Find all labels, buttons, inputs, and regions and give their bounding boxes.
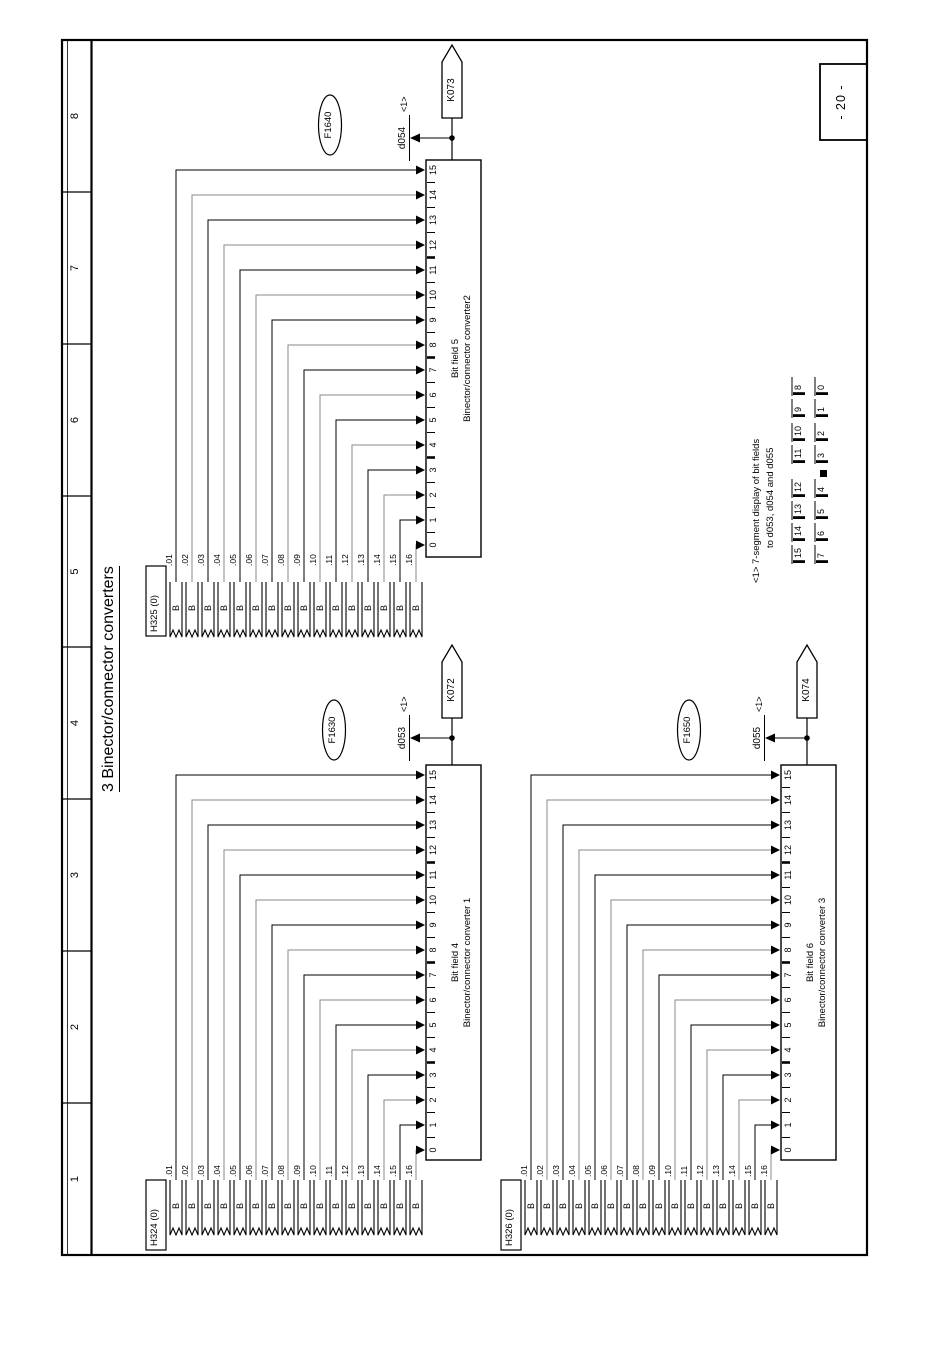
binector-type-label: B xyxy=(266,1203,278,1209)
bit-wire xyxy=(272,320,417,582)
binector-type-label: B xyxy=(637,1203,649,1209)
source-param-label: H324 (0) xyxy=(150,1209,161,1246)
pin-number: 8 xyxy=(428,334,438,356)
binector-type-label: B xyxy=(234,605,246,611)
pin-number: 10 xyxy=(428,889,438,911)
bit-wire xyxy=(208,220,417,582)
binector-type-label: B xyxy=(394,605,406,611)
pin-number: 4 xyxy=(428,434,438,456)
bit-number-label: .08 xyxy=(277,554,287,566)
segment-bar xyxy=(816,460,828,463)
block-subtitle: Binector/connector converter 3 xyxy=(818,765,829,1160)
footnote-line2: to d053, d054 and d055 xyxy=(766,448,777,548)
input-arrow-icon xyxy=(416,191,425,200)
input-arrow-icon xyxy=(771,846,780,855)
binector-type-label: B xyxy=(573,1203,585,1209)
pin-number: 11 xyxy=(428,259,438,281)
bit-number-label: .10 xyxy=(309,554,319,566)
connector-name: K074 xyxy=(800,664,813,716)
input-arrow-icon xyxy=(771,1146,780,1155)
binector-type-label: B xyxy=(378,1203,390,1209)
binector-type-label: B xyxy=(378,605,390,611)
pin-number: 9 xyxy=(428,309,438,331)
bit-number-label: .12 xyxy=(341,554,351,566)
seg-bit-number: 1 xyxy=(816,407,826,412)
seg-bit-number: 14 xyxy=(793,526,803,536)
pin-number: 1 xyxy=(428,509,438,531)
bit-number-label: .13 xyxy=(357,554,367,566)
bit-number-label: .03 xyxy=(197,1165,207,1177)
column-number: 2 xyxy=(69,1007,82,1047)
bit-wire xyxy=(272,925,417,1180)
input-arrow-icon xyxy=(416,1046,425,1055)
bit-number-label: .15 xyxy=(744,1165,754,1177)
display-arrow-icon xyxy=(765,734,775,743)
binector-type-label: B xyxy=(170,605,182,611)
pin-number: 4 xyxy=(428,1039,438,1061)
seg-bit-number: 13 xyxy=(793,504,803,514)
pin-number: 7 xyxy=(428,964,438,986)
input-arrow-icon xyxy=(416,871,425,880)
bit-number-label: .14 xyxy=(373,1165,383,1177)
pin-number: 5 xyxy=(428,1014,438,1036)
bit-number-label: .12 xyxy=(341,1165,351,1177)
pin-number: 9 xyxy=(783,914,793,936)
bit-wire xyxy=(771,1150,772,1180)
pin-number: 3 xyxy=(783,1064,793,1086)
bit-wire xyxy=(563,825,772,1180)
bit-number-label: .14 xyxy=(728,1165,738,1177)
block-title: Bit field 6 xyxy=(806,765,817,1160)
binector-type-label: B xyxy=(282,605,294,611)
binector-type-label: B xyxy=(685,1203,697,1209)
bit-number-label: .16 xyxy=(760,1165,770,1177)
footnote-ref: <1> xyxy=(399,96,409,112)
pin-number: 12 xyxy=(428,839,438,861)
input-arrow-icon xyxy=(771,996,780,1005)
display-param-label: d055 xyxy=(752,715,765,761)
bit-number-label: .08 xyxy=(632,1165,642,1177)
pin-number: 6 xyxy=(783,989,793,1011)
binector-type-label: B xyxy=(621,1203,633,1209)
input-arrow-icon xyxy=(416,996,425,1005)
footnote-ref: <1> xyxy=(399,696,409,712)
pin-number: 4 xyxy=(783,1039,793,1061)
pin-number: 7 xyxy=(783,964,793,986)
binector-type-label: B xyxy=(653,1203,665,1209)
column-number: 7 xyxy=(69,248,82,288)
pin-number: 1 xyxy=(428,1114,438,1136)
bit-wire xyxy=(416,1150,417,1180)
bit-wire xyxy=(240,875,417,1180)
bit-wire xyxy=(176,775,417,1180)
pin-number: 3 xyxy=(428,1064,438,1086)
bit-number-label: .01 xyxy=(520,1165,530,1177)
seg-bit-number: 10 xyxy=(793,426,803,436)
column-number: 5 xyxy=(69,552,82,592)
input-arrow-icon xyxy=(771,821,780,830)
binector-type-label: B xyxy=(202,1203,214,1209)
bit-number-label: .02 xyxy=(181,1165,191,1177)
bit-wire xyxy=(336,1025,417,1180)
binector-type-label: B xyxy=(218,605,230,611)
bit-number-label: .16 xyxy=(405,554,415,566)
input-arrow-icon xyxy=(416,216,425,225)
bit-number-label: .05 xyxy=(229,1165,239,1177)
bit-wire xyxy=(531,775,772,1180)
bit-number-label: .13 xyxy=(712,1165,722,1177)
bit-number-label: .01 xyxy=(165,1165,175,1177)
input-arrow-icon xyxy=(416,921,425,930)
pin-number: 11 xyxy=(783,864,793,886)
input-arrow-icon xyxy=(416,291,425,300)
source-param-label: H326 (0) xyxy=(505,1209,516,1246)
block-subtitle: Binector/connector converter 1 xyxy=(463,765,474,1160)
fault-ref-label: F1650 xyxy=(683,700,694,760)
segment-bar xyxy=(816,538,828,541)
pin-number: 8 xyxy=(428,939,438,961)
seg-bit-number: 6 xyxy=(816,531,826,536)
binector-type-label: B xyxy=(234,1203,246,1209)
bit-number-label: .11 xyxy=(680,1166,690,1177)
input-arrow-icon xyxy=(416,946,425,955)
binector-type-label: B xyxy=(362,605,374,611)
binector-type-label: B xyxy=(298,1203,310,1209)
bit-number-label: .13 xyxy=(357,1165,367,1177)
segment-bar xyxy=(816,494,828,497)
segment-bar xyxy=(793,516,805,519)
bit-number-label: .16 xyxy=(405,1165,415,1177)
pin-number: 6 xyxy=(428,384,438,406)
input-arrow-icon xyxy=(416,541,425,550)
seg-bit-number: 7 xyxy=(816,553,826,558)
bit-number-label: .08 xyxy=(277,1165,287,1177)
bit-number-label: .09 xyxy=(648,1165,658,1177)
pin-number: 15 xyxy=(428,159,438,181)
input-arrow-icon xyxy=(416,796,425,805)
input-arrow-icon xyxy=(416,1071,425,1080)
bit-number-label: .09 xyxy=(293,554,303,566)
column-number: 4 xyxy=(69,703,82,743)
pin-number: 12 xyxy=(783,839,793,861)
binector-type-label: B xyxy=(250,605,262,611)
segment-bar xyxy=(793,494,805,497)
binector-type-label: B xyxy=(605,1203,617,1209)
display-arrow-icon xyxy=(410,134,420,143)
pin-number: 6 xyxy=(428,989,438,1011)
bit-number-label: .10 xyxy=(664,1165,674,1177)
segment-bar xyxy=(816,392,828,395)
pin-number: 9 xyxy=(428,914,438,936)
pin-number: 1 xyxy=(783,1114,793,1136)
pin-number: 0 xyxy=(428,534,438,556)
display-param-label: d054 xyxy=(397,115,410,161)
binector-type-label: B xyxy=(733,1203,745,1209)
binector-type-label: B xyxy=(765,1203,777,1209)
segment-bar xyxy=(816,516,828,519)
pin-number: 10 xyxy=(783,889,793,911)
bit-number-label: .06 xyxy=(600,1165,610,1177)
bit-number-label: .04 xyxy=(568,1165,578,1177)
connector-name: K072 xyxy=(445,664,458,716)
seg-bit-number: 12 xyxy=(793,482,803,492)
footnote-line1: <1> 7-segment display of bit fields xyxy=(752,439,763,583)
fault-ref-label: F1630 xyxy=(328,700,339,760)
function-diagram-page: 3 Binector/connector converters <1> 7-se… xyxy=(0,0,950,1370)
bit-number-label: .12 xyxy=(696,1165,706,1177)
segment-bar xyxy=(793,414,805,417)
bit-wire xyxy=(400,520,417,582)
pin-number: 2 xyxy=(428,484,438,506)
input-arrow-icon xyxy=(771,896,780,905)
bit-number-label: .05 xyxy=(584,1165,594,1177)
pin-number: 12 xyxy=(428,234,438,256)
block-title: Bit field 5 xyxy=(451,160,462,557)
bit-number-label: .15 xyxy=(389,554,399,566)
binector-type-label: B xyxy=(202,605,214,611)
block-title: Bit field 4 xyxy=(451,765,462,1160)
pin-number: 0 xyxy=(428,1139,438,1161)
input-arrow-icon xyxy=(771,971,780,980)
input-arrow-icon xyxy=(771,1071,780,1080)
input-arrow-icon xyxy=(416,491,425,500)
fault-ref-label: F1640 xyxy=(324,95,335,155)
binector-type-label: B xyxy=(410,1203,422,1209)
seg-bit-number: 2 xyxy=(816,431,826,436)
source-param-label: H325 (0) xyxy=(150,595,161,632)
pin-number: 14 xyxy=(783,789,793,811)
pin-number: 15 xyxy=(783,764,793,786)
column-number: 8 xyxy=(69,96,82,136)
pin-number: 0 xyxy=(783,1139,793,1161)
binector-type-label: B xyxy=(557,1203,569,1209)
binector-type-label: B xyxy=(298,605,310,611)
input-arrow-icon xyxy=(771,1021,780,1030)
pin-number: 15 xyxy=(428,764,438,786)
bit-wire xyxy=(240,270,417,582)
bit-number-label: .11 xyxy=(325,1166,335,1177)
input-arrow-icon xyxy=(416,821,425,830)
pin-number: 7 xyxy=(428,359,438,381)
input-arrow-icon xyxy=(416,316,425,325)
segment-bar xyxy=(793,560,805,563)
bit-wire xyxy=(176,170,417,582)
binector-type-label: B xyxy=(346,605,358,611)
bit-number-label: .14 xyxy=(373,554,383,566)
bit-number-label: .11 xyxy=(325,555,335,566)
binector-type-label: B xyxy=(250,1203,262,1209)
bit-number-label: .06 xyxy=(245,554,255,566)
input-arrow-icon xyxy=(416,466,425,475)
column-number: 3 xyxy=(69,855,82,895)
bit-number-label: .02 xyxy=(536,1165,546,1177)
input-arrow-icon xyxy=(416,366,425,375)
binector-type-label: B xyxy=(218,1203,230,1209)
binector-type-label: B xyxy=(525,1203,537,1209)
input-arrow-icon xyxy=(771,871,780,880)
binector-type-label: B xyxy=(362,1203,374,1209)
pin-number: 8 xyxy=(783,939,793,961)
bit-number-label: .07 xyxy=(261,554,271,566)
binector-type-label: B xyxy=(701,1203,713,1209)
input-arrow-icon xyxy=(416,1021,425,1030)
input-arrow-icon xyxy=(416,846,425,855)
binector-type-label: B xyxy=(266,605,278,611)
input-arrow-icon xyxy=(416,896,425,905)
input-arrow-icon xyxy=(416,341,425,350)
bit-number-label: .15 xyxy=(389,1165,399,1177)
input-arrow-icon xyxy=(416,1096,425,1105)
seg-bit-number: 15 xyxy=(793,548,803,558)
display-param-label: d053 xyxy=(397,715,410,761)
seg-bit-number: 0 xyxy=(816,385,826,390)
pin-number: 10 xyxy=(428,284,438,306)
segment-bar xyxy=(816,414,828,417)
pin-number: 13 xyxy=(428,209,438,231)
segment-bar xyxy=(793,438,805,441)
bit-number-label: .05 xyxy=(229,554,239,566)
bit-number-label: .02 xyxy=(181,554,191,566)
display-arrow-icon xyxy=(410,734,420,743)
pin-number: 3 xyxy=(428,459,438,481)
bit-number-label: .06 xyxy=(245,1165,255,1177)
input-arrow-icon xyxy=(416,516,425,525)
binector-type-label: B xyxy=(410,605,422,611)
bit-number-label: .09 xyxy=(293,1165,303,1177)
pin-number: 14 xyxy=(428,184,438,206)
binector-type-label: B xyxy=(314,605,326,611)
bit-wire xyxy=(416,545,417,582)
input-arrow-icon xyxy=(416,266,425,275)
column-number: 6 xyxy=(69,400,82,440)
connector-name: K073 xyxy=(445,64,458,116)
seg-bit-number: 5 xyxy=(816,509,826,514)
bit-number-label: .07 xyxy=(261,1165,271,1177)
input-arrow-icon xyxy=(416,416,425,425)
bit-wire xyxy=(627,925,772,1180)
binector-type-label: B xyxy=(717,1203,729,1209)
binector-type-label: B xyxy=(282,1203,294,1209)
binector-type-label: B xyxy=(749,1203,761,1209)
segment-bar xyxy=(816,560,828,563)
pin-number: 14 xyxy=(428,789,438,811)
binector-type-label: B xyxy=(541,1203,553,1209)
decimal-point-square xyxy=(820,470,827,477)
segment-bar xyxy=(793,460,805,463)
pin-number: 5 xyxy=(428,409,438,431)
input-arrow-icon xyxy=(416,166,425,175)
input-arrow-icon xyxy=(416,441,425,450)
pin-number: 5 xyxy=(783,1014,793,1036)
bit-number-label: .04 xyxy=(213,1165,223,1177)
input-arrow-icon xyxy=(771,1046,780,1055)
seg-bit-number: 11 xyxy=(793,449,803,458)
pin-number: 13 xyxy=(783,814,793,836)
bit-wire xyxy=(595,875,772,1180)
input-arrow-icon xyxy=(771,946,780,955)
binector-type-label: B xyxy=(330,1203,342,1209)
bit-number-label: .07 xyxy=(616,1165,626,1177)
input-arrow-icon xyxy=(416,391,425,400)
input-arrow-icon xyxy=(416,241,425,250)
page-title: 3 Binector/connector converters xyxy=(100,566,120,792)
scanned-page: 3 Binector/connector converters <1> 7-se… xyxy=(0,0,950,1370)
segment-bar xyxy=(793,392,805,395)
seg-bit-number: 9 xyxy=(793,407,803,412)
pin-number: 13 xyxy=(428,814,438,836)
input-arrow-icon xyxy=(771,771,780,780)
input-arrow-icon xyxy=(416,1146,425,1155)
binector-type-label: B xyxy=(186,605,198,611)
input-arrow-icon xyxy=(416,1121,425,1130)
binector-type-label: B xyxy=(170,1203,182,1209)
bit-number-label: .03 xyxy=(552,1165,562,1177)
footnote-ref: <1> xyxy=(754,696,764,712)
binector-type-label: B xyxy=(669,1203,681,1209)
block-subtitle: Binector/connector converter2 xyxy=(463,160,474,557)
column-number: 1 xyxy=(69,1159,82,1199)
input-arrow-icon xyxy=(416,971,425,980)
input-arrow-icon xyxy=(771,1096,780,1105)
seg-bit-number: 3 xyxy=(816,453,826,458)
pin-number: 11 xyxy=(428,864,438,886)
bit-wire xyxy=(208,825,417,1180)
input-arrow-icon xyxy=(771,921,780,930)
segment-bar xyxy=(816,438,828,441)
seg-bit-number: 8 xyxy=(793,385,803,390)
binector-type-label: B xyxy=(394,1203,406,1209)
page-number: - 20 - xyxy=(834,64,848,140)
binector-type-label: B xyxy=(346,1203,358,1209)
bit-number-label: .03 xyxy=(197,554,207,566)
input-arrow-icon xyxy=(771,1121,780,1130)
binector-type-label: B xyxy=(330,605,342,611)
seg-bit-number: 4 xyxy=(816,487,826,492)
input-arrow-icon xyxy=(416,771,425,780)
segment-bar xyxy=(793,538,805,541)
binector-type-label: B xyxy=(589,1203,601,1209)
bit-number-label: .10 xyxy=(309,1165,319,1177)
bit-number-label: .04 xyxy=(213,554,223,566)
pin-number: 2 xyxy=(428,1089,438,1111)
bit-number-label: .01 xyxy=(165,554,175,566)
pin-number: 2 xyxy=(783,1089,793,1111)
binector-type-label: B xyxy=(186,1203,198,1209)
input-arrow-icon xyxy=(771,796,780,805)
binector-type-label: B xyxy=(314,1203,326,1209)
bit-wire xyxy=(691,1025,772,1180)
